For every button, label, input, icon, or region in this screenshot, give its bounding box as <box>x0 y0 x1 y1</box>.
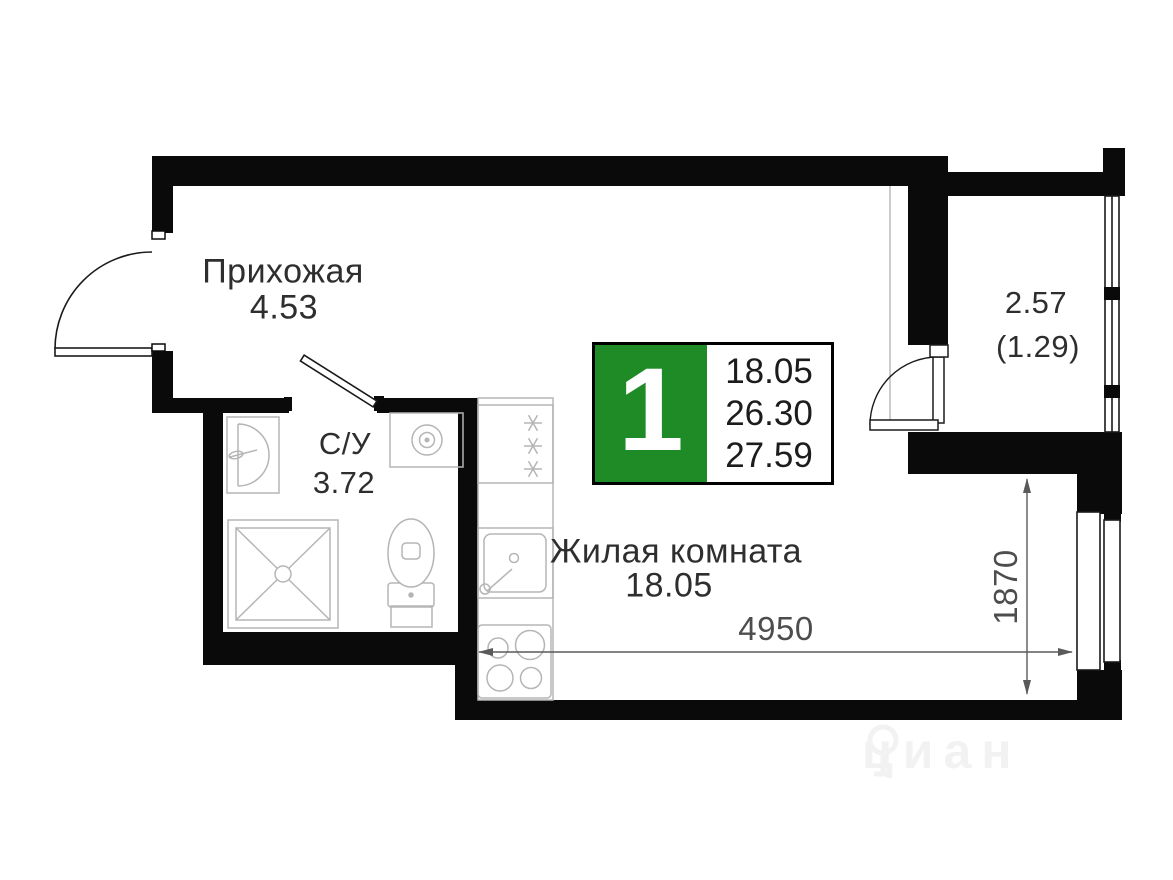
window-mullion <box>1104 287 1120 300</box>
arrow-down-icon <box>1023 680 1031 695</box>
bathroom-name-label: С/У <box>319 426 371 462</box>
wall-bathroom-left <box>203 413 223 632</box>
balcony-area-label: 2.57 <box>1005 285 1067 321</box>
hallway-name-label: Прихожая <box>202 253 364 292</box>
door-leaf <box>870 420 938 430</box>
wall-left-upper <box>152 156 173 233</box>
snowflake-icon <box>524 438 542 454</box>
snowflake-icon <box>524 461 542 477</box>
snowflake-icon <box>524 415 542 431</box>
door-frame-notch <box>284 397 292 411</box>
window-mullion <box>1104 385 1120 398</box>
bathroom-area-label: 3.72 <box>313 465 375 501</box>
wall-bathroom-bottom <box>203 632 478 665</box>
wall-bottom <box>455 700 1122 720</box>
hallway-area-label: 4.53 <box>250 289 318 328</box>
door-frame <box>930 345 948 357</box>
rooms-count-tile: 1 <box>595 345 707 482</box>
door-leaf <box>300 355 376 407</box>
wall-balcony-top <box>940 172 1122 196</box>
door-frame <box>152 231 165 239</box>
door-swing-arc <box>870 357 938 425</box>
toilet <box>388 519 434 627</box>
floor-plan: Прихожая 4.53 С/У 3.72 Жилая комната 18.… <box>0 0 1173 880</box>
watermark: циан <box>862 722 1021 780</box>
wall-balcony-bottom <box>908 432 1122 474</box>
door-swing-arc <box>55 252 152 349</box>
living-area-value: 18.05 <box>725 351 813 393</box>
wall-top <box>152 156 948 186</box>
total-area-value: 27.59 <box>725 435 813 477</box>
arrow-up-icon <box>1023 478 1031 493</box>
arrow-left-icon <box>478 648 493 656</box>
wall-kitchen-left <box>458 398 478 638</box>
wall-right-lower-block <box>1077 670 1122 704</box>
shower-cabin <box>228 520 338 628</box>
apartment-info-badge: 1 18.05 26.30 27.59 <box>592 342 834 485</box>
bathroom-door <box>300 355 376 407</box>
area-values: 18.05 26.30 27.59 <box>707 345 831 482</box>
dimension-width <box>478 648 1073 656</box>
door-glazing <box>933 357 944 423</box>
bathroom-sink <box>227 417 279 493</box>
wall-right-upper-block <box>1077 474 1122 514</box>
entrance-door <box>55 231 165 356</box>
wall-bathroom-top-left <box>152 398 289 413</box>
living-room-area-label: 18.05 <box>625 567 713 606</box>
rooms-count: 1 <box>618 351 684 469</box>
arrow-right-icon <box>1058 648 1073 656</box>
kitchen-sink <box>478 528 553 598</box>
dimension-width-label: 4950 <box>738 610 813 648</box>
balcony-window <box>1104 196 1120 432</box>
balcony-door <box>870 345 948 430</box>
door-leaf <box>55 348 152 356</box>
dimension-height-label: 1870 <box>987 549 1025 624</box>
map-pin-icon <box>862 722 904 780</box>
washing-machine <box>390 413 463 467</box>
wall-balcony-top-cap <box>1103 148 1125 196</box>
living-room-window <box>1077 512 1120 670</box>
kitchen-fridge <box>478 405 553 483</box>
area-without-balcony-value: 26.30 <box>725 393 813 435</box>
door-frame <box>152 344 165 351</box>
kitchen-stove <box>478 625 551 698</box>
balcony-area-reduced-label: (1.29) <box>996 329 1080 365</box>
